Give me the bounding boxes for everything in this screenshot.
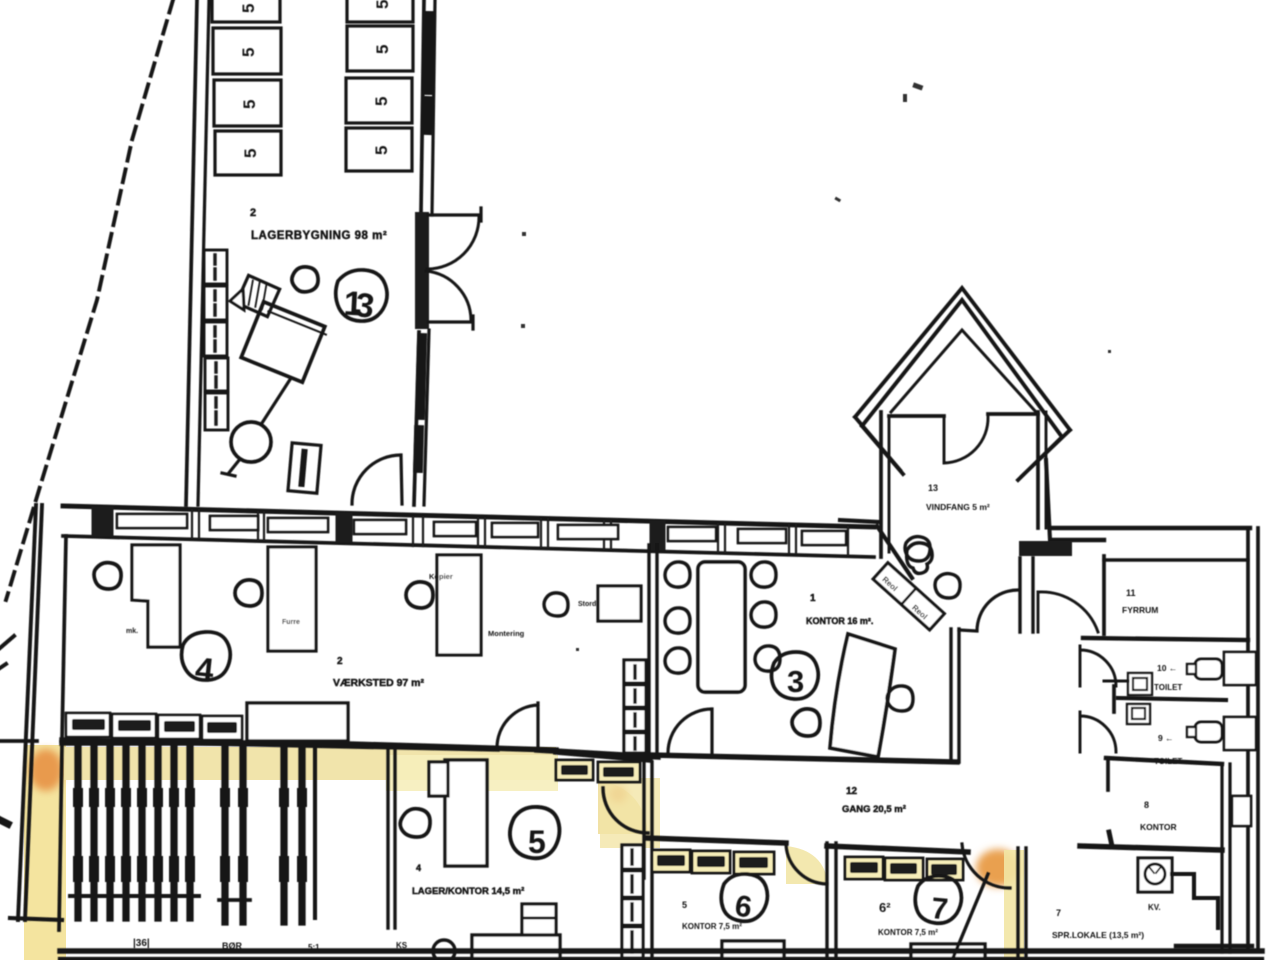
svg-text:1: 1 — [810, 593, 816, 604]
svg-text:2: 2 — [250, 207, 256, 219]
svg-text:3: 3 — [787, 664, 804, 699]
svg-text:LAGERBYGNING 98 m²: LAGERBYGNING 98 m² — [251, 230, 387, 242]
svg-text:2: 2 — [337, 656, 343, 667]
svg-text:5: 5 — [239, 48, 258, 57]
svg-text:Stord: Stord — [578, 601, 596, 608]
svg-text:GANG 20,5 m²: GANG 20,5 m² — [842, 804, 906, 815]
svg-text:5: 5 — [239, 4, 258, 13]
svg-text:KONTOR: KONTOR — [1140, 822, 1177, 832]
svg-text:5: 5 — [372, 146, 391, 155]
svg-text:8: 8 — [1144, 800, 1149, 810]
svg-text:VÆRKSTED 97 m²: VÆRKSTED 97 m² — [333, 677, 425, 689]
svg-text:10 ←: 10 ← — [1157, 663, 1177, 673]
svg-text:12: 12 — [846, 786, 858, 797]
svg-text:KONTOR 7,5 m²: KONTOR 7,5 m² — [682, 922, 742, 931]
svg-text:|36|: |36| — [133, 938, 150, 949]
svg-text:5: 5 — [372, 97, 391, 106]
svg-text:9 ←: 9 ← — [1158, 733, 1174, 743]
svg-text:13: 13 — [928, 483, 938, 493]
svg-text:FYRRUM: FYRRUM — [1122, 605, 1158, 615]
svg-text:5: 5 — [241, 149, 260, 158]
svg-text:Montering: Montering — [488, 629, 525, 638]
svg-text:KV.: KV. — [1148, 903, 1161, 912]
svg-text:4: 4 — [416, 863, 421, 873]
svg-text:mk.: mk. — [126, 628, 138, 635]
svg-text:SPR.LOKALE (13,5 m²): SPR.LOKALE (13,5 m²) — [1052, 930, 1144, 940]
svg-text:5: 5 — [373, 45, 392, 54]
svg-text:VINDFANG 5 m²: VINDFANG 5 m² — [926, 502, 990, 512]
svg-text:Kopier: Kopier — [429, 572, 453, 581]
svg-text:5: 5 — [373, 0, 392, 9]
svg-text:5: 5 — [240, 100, 259, 109]
svg-text:KONTOR 7,5 m²: KONTOR 7,5 m² — [878, 928, 938, 937]
svg-text:7: 7 — [1056, 908, 1061, 918]
svg-text:LAGER/KONTOR 14,5 m²: LAGER/KONTOR 14,5 m² — [412, 886, 524, 897]
svg-text:6²: 6² — [879, 900, 891, 915]
svg-text:Furre: Furre — [282, 619, 300, 626]
svg-text:11: 11 — [1126, 588, 1136, 598]
svg-text:TOILET: TOILET — [1154, 683, 1182, 692]
svg-text:KONTOR 16 m².: KONTOR 16 m². — [806, 616, 873, 626]
svg-text:7: 7 — [930, 892, 950, 926]
svg-text:5: 5 — [528, 824, 546, 860]
svg-text:4: 4 — [194, 650, 217, 689]
svg-text:5: 5 — [682, 900, 687, 910]
